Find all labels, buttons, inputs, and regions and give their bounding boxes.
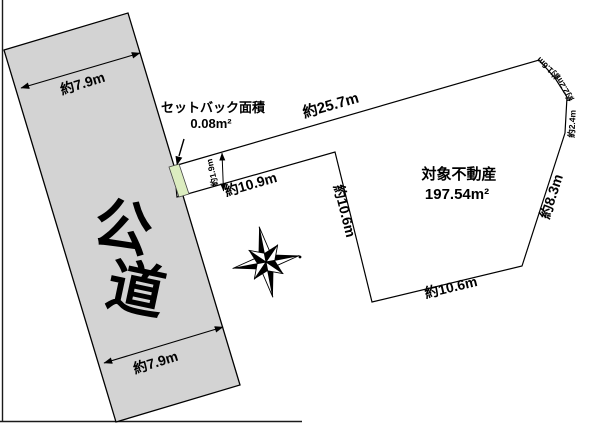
edge-corner3-label: 約2.4m <box>566 109 577 138</box>
parcel-name-label: 対象不動産 <box>420 165 496 183</box>
lot-diagram-canvas: 約7.9m 約7.9m 公 道 セットバック面積 0.08m² 約1.9m 約2… <box>0 0 600 426</box>
lot-diagram: 約7.9m 約7.9m 公 道 セットバック面積 0.08m² 約1.9m 約2… <box>0 0 600 426</box>
compass-rose-icon <box>226 220 306 304</box>
compass-dot <box>299 256 302 259</box>
setback-caption-line1: セットバック面積 <box>161 100 266 115</box>
setback-arrow <box>179 139 184 156</box>
parcel-area-label: 197.54m² <box>425 186 489 203</box>
setback-caption-line2: 0.08m² <box>190 116 232 131</box>
